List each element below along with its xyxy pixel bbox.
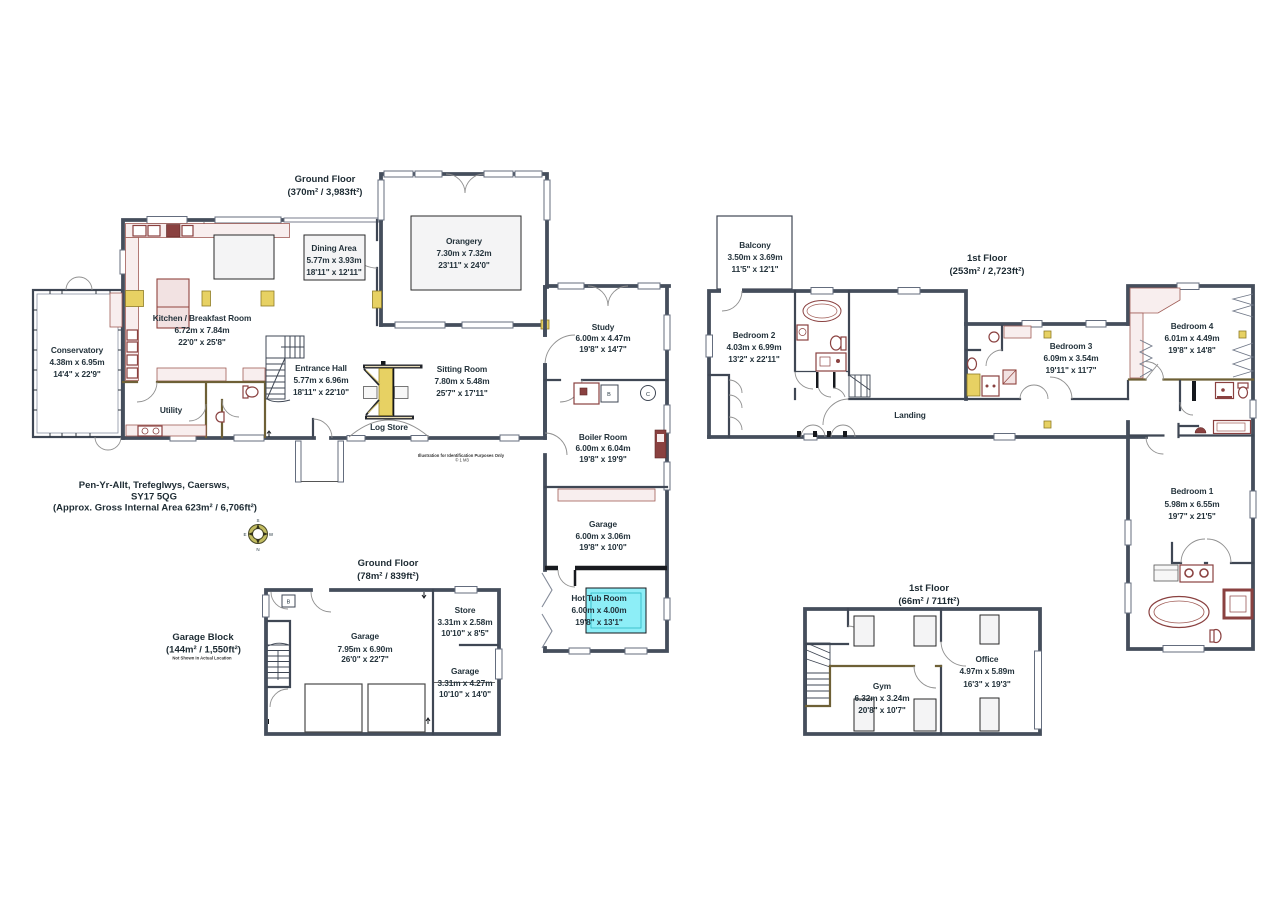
svg-text:Hot Tub Room: Hot Tub Room <box>571 593 626 603</box>
svg-text:Garage: Garage <box>451 666 479 676</box>
svg-text:Ground Floor: Ground Floor <box>358 558 419 569</box>
svg-text:16'3" x 19'3": 16'3" x 19'3" <box>963 679 1011 689</box>
svg-text:N: N <box>256 547 259 552</box>
svg-text:5.98m x 6.55m: 5.98m x 6.55m <box>1165 499 1220 509</box>
svg-text:Kitchen / Breakfast Room: Kitchen / Breakfast Room <box>153 313 252 323</box>
svg-text:10'10" x 8'5": 10'10" x 8'5" <box>441 628 489 638</box>
svg-text:18'11" x 22'10": 18'11" x 22'10" <box>293 387 349 397</box>
svg-text:Utility: Utility <box>160 405 183 415</box>
svg-text:(66m² / 711ft²): (66m² / 711ft²) <box>898 596 959 607</box>
svg-text:Garage Block: Garage Block <box>172 632 234 643</box>
svg-text:Log Store: Log Store <box>370 422 408 432</box>
svg-text:3.31m x 2.58m: 3.31m x 2.58m <box>438 617 493 627</box>
svg-text:19'8" x 14'8": 19'8" x 14'8" <box>1168 345 1216 355</box>
svg-text:S: S <box>256 518 259 523</box>
svg-text:1st Floor: 1st Floor <box>967 253 1007 264</box>
svg-text:Garage: Garage <box>589 519 617 529</box>
svg-text:3.31m x 4.27m: 3.31m x 4.27m <box>438 678 493 688</box>
svg-text:5.77m x 6.96m: 5.77m x 6.96m <box>294 375 349 385</box>
svg-text:Not Shown In Actual Location: Not Shown In Actual Location <box>172 656 232 661</box>
svg-text:Entrance Hall: Entrance Hall <box>295 363 347 373</box>
svg-text:14'4" x 22'9": 14'4" x 22'9" <box>53 369 101 379</box>
svg-text:19'7" x 21'5": 19'7" x 21'5" <box>1168 511 1216 521</box>
svg-text:Sitting Room: Sitting Room <box>437 364 487 374</box>
svg-text:Orangery: Orangery <box>446 236 483 246</box>
svg-text:10'10" x 14'0": 10'10" x 14'0" <box>439 689 491 699</box>
svg-text:SY17 5QG: SY17 5QG <box>131 492 177 503</box>
svg-text:Landing: Landing <box>894 410 926 420</box>
svg-text:6.09m x 3.54m: 6.09m x 3.54m <box>1044 353 1099 363</box>
svg-text:Bedroom 1: Bedroom 1 <box>1171 486 1214 496</box>
svg-text:4.38m x 6.95m: 4.38m x 6.95m <box>50 357 105 367</box>
svg-text:Pen-Yr-Allt, Trefeglwys, Caers: Pen-Yr-Allt, Trefeglwys, Caersws, <box>79 480 229 491</box>
svg-text:Conservatory: Conservatory <box>51 345 104 355</box>
svg-text:E: E <box>243 532 246 537</box>
svg-text:7.80m x 5.48m: 7.80m x 5.48m <box>435 376 490 386</box>
svg-text:6.00m x 4.47m: 6.00m x 4.47m <box>576 333 631 343</box>
svg-text:3.50m x 3.69m: 3.50m x 3.69m <box>728 252 783 262</box>
svg-text:Bedroom 2: Bedroom 2 <box>733 330 776 340</box>
svg-text:1st Floor: 1st Floor <box>909 583 949 594</box>
svg-text:13'2" x 22'11": 13'2" x 22'11" <box>728 354 780 364</box>
svg-text:20'8" x 10'7": 20'8" x 10'7" <box>858 705 906 715</box>
svg-text:4.97m x 5.89m: 4.97m x 5.89m <box>960 666 1015 676</box>
svg-text:B: B <box>607 392 611 398</box>
svg-text:6.00m x 4.00m: 6.00m x 4.00m <box>572 605 627 615</box>
svg-text:19'8" x 10'0": 19'8" x 10'0" <box>579 542 627 552</box>
svg-text:(78m² / 839ft²): (78m² / 839ft²) <box>357 571 419 582</box>
svg-text:B: B <box>287 600 291 606</box>
svg-text:Dining Area: Dining Area <box>311 243 357 253</box>
svg-text:Gym: Gym <box>873 681 891 691</box>
svg-text:6.00m x 3.06m: 6.00m x 3.06m <box>576 531 631 541</box>
svg-text:19'11" x 11'7": 19'11" x 11'7" <box>1045 365 1096 375</box>
svg-text:19'8" x 19'9": 19'8" x 19'9" <box>579 454 627 464</box>
svg-text:(Approx. Gross Internal Area 6: (Approx. Gross Internal Area 623m² / 6,7… <box>53 503 257 514</box>
svg-text:Boiler Room: Boiler Room <box>579 432 627 442</box>
svg-text:© 1 M3: © 1 M3 <box>455 458 469 463</box>
svg-text:11'5" x 12'1": 11'5" x 12'1" <box>732 264 779 274</box>
svg-text:19'8" x 14'7": 19'8" x 14'7" <box>579 344 627 354</box>
svg-text:Bedroom 4: Bedroom 4 <box>1171 321 1214 331</box>
svg-text:6.72m x 7.84m: 6.72m x 7.84m <box>175 325 230 335</box>
svg-text:26'0" x 22'7": 26'0" x 22'7" <box>341 654 389 664</box>
svg-text:Balcony: Balcony <box>739 240 771 250</box>
svg-text:7.30m x 7.32m: 7.30m x 7.32m <box>437 248 492 258</box>
svg-text:5.77m x 3.93m: 5.77m x 3.93m <box>307 255 362 265</box>
svg-text:25'7" x 17'11": 25'7" x 17'11" <box>436 388 488 398</box>
svg-text:19'8" x 13'1": 19'8" x 13'1" <box>575 617 623 627</box>
svg-text:7.95m x 6.90m: 7.95m x 6.90m <box>338 644 393 654</box>
svg-text:6.01m x 4.49m: 6.01m x 4.49m <box>1165 333 1220 343</box>
svg-text:23'11" x 24'0": 23'11" x 24'0" <box>438 260 490 270</box>
svg-text:(370m² / 3,983ft²): (370m² / 3,983ft²) <box>288 187 363 198</box>
svg-text:Store: Store <box>455 605 476 615</box>
svg-text:(144m² / 1,550ft²): (144m² / 1,550ft²) <box>166 645 241 656</box>
svg-text:Garage: Garage <box>351 631 379 641</box>
svg-text:Bedroom 3: Bedroom 3 <box>1050 341 1093 351</box>
svg-text:22'0" x 25'8": 22'0" x 25'8" <box>178 337 226 347</box>
svg-text:C: C <box>646 392 650 398</box>
svg-text:Ground Floor: Ground Floor <box>295 174 356 185</box>
svg-text:Study: Study <box>592 322 615 332</box>
svg-text:(253m² / 2,723ft²): (253m² / 2,723ft²) <box>950 266 1025 277</box>
svg-text:18'11" x 12'11": 18'11" x 12'11" <box>306 267 362 277</box>
svg-text:6.32m x 3.24m: 6.32m x 3.24m <box>855 693 910 703</box>
svg-text:Office: Office <box>976 654 999 664</box>
svg-text:4.03m x 6.99m: 4.03m x 6.99m <box>727 342 782 352</box>
svg-text:6.00m x 6.04m: 6.00m x 6.04m <box>576 443 631 453</box>
